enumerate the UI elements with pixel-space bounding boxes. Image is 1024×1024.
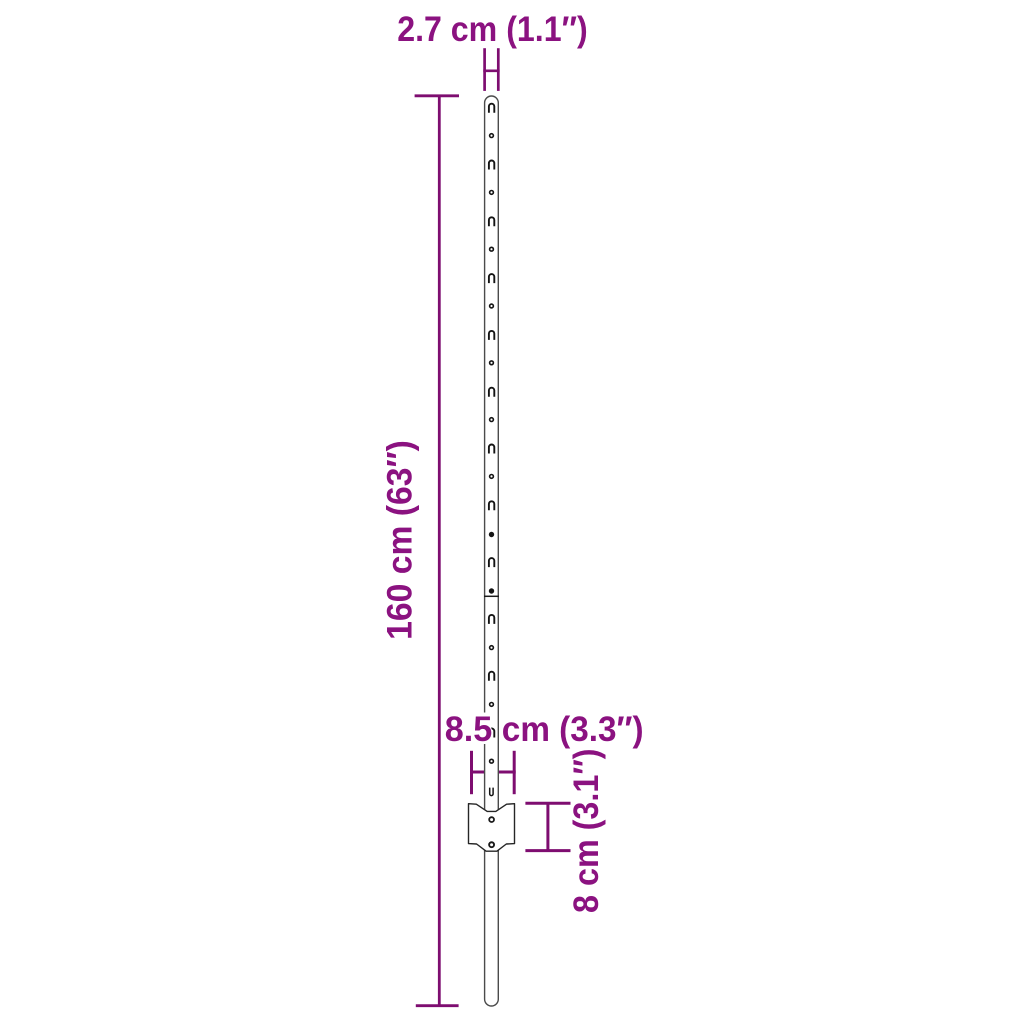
svg-text:2.7 cm (1.1″): 2.7 cm (1.1″) xyxy=(397,9,588,49)
svg-text:8.5: 8.5 xyxy=(445,709,493,749)
svg-text:160 cm (63″): 160 cm (63″) xyxy=(380,440,420,640)
svg-text:cm (3.3″): cm (3.3″) xyxy=(502,709,644,749)
svg-text:8 cm (3.1″): 8 cm (3.1″) xyxy=(566,748,606,913)
